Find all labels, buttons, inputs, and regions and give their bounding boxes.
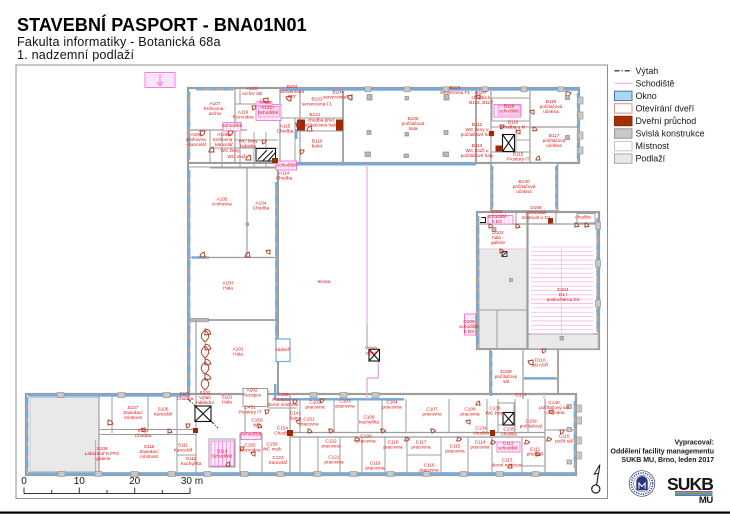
svg-text:Recepce: Recepce xyxy=(243,393,262,398)
svg-text:WC muži: WC muži xyxy=(227,154,246,159)
svg-text:kuchyňka: kuchyňka xyxy=(359,420,379,425)
svg-text:schodiště: schodiště xyxy=(499,109,519,114)
svg-text:Dveřní průchod: Dveřní průchod xyxy=(636,116,697,126)
svg-text:pracovna: pracovna xyxy=(419,468,439,473)
svg-text:serverovna F1: serverovna F1 xyxy=(302,102,332,107)
svg-text:sál ASŘ: sál ASŘ xyxy=(532,361,549,368)
svg-text:k D3: k D3 xyxy=(492,219,502,224)
svg-text:Chodba: Chodba xyxy=(253,206,270,211)
svg-text:Svislá konstrukce: Svislá konstrukce xyxy=(636,129,705,139)
svg-text:sál: sál xyxy=(503,379,509,384)
svg-text:MU: MU xyxy=(699,495,714,506)
svg-text:WC ženy: WC ženy xyxy=(485,411,505,416)
svg-text:Schodiště: Schodiště xyxy=(212,454,233,459)
svg-text:chodba: chodba xyxy=(575,215,591,220)
svg-text:pracovna: pracovna xyxy=(356,439,376,444)
svg-text:20: 20 xyxy=(129,476,141,487)
svg-text:sklad: sklad xyxy=(366,351,377,356)
svg-text:SUKB MU, Brno, leden 2017: SUKB MU, Brno, leden 2017 xyxy=(621,457,714,464)
svg-text:pracovna: pracovna xyxy=(411,445,431,450)
svg-text:30 m: 30 m xyxy=(181,476,203,487)
svg-text:Schodiště: Schodiště xyxy=(276,163,297,168)
svg-text:Hala: Hala xyxy=(233,352,243,357)
svg-text:pracovna: pracovna xyxy=(382,405,402,410)
svg-text:počítačové haly: počítačové haly xyxy=(461,132,494,137)
svg-text:Chodba: Chodba xyxy=(276,176,293,181)
svg-text:92T: 92T xyxy=(288,94,296,99)
svg-text:denní místnost: denní místnost xyxy=(492,463,523,468)
svg-text:Vypracoval:: Vypracoval: xyxy=(675,440,714,447)
svg-text:chodba u N: chodba u N xyxy=(501,125,525,130)
svg-text:Schodiště: Schodiště xyxy=(222,123,243,128)
svg-text:učebna: učebna xyxy=(546,143,562,148)
svg-text:pracovna: pracovna xyxy=(305,405,325,410)
svg-text:- ústředna: - ústředna xyxy=(543,410,564,415)
svg-text:terasa: terasa xyxy=(317,279,330,284)
svg-text:pracovna: pracovna xyxy=(422,412,442,417)
svg-text:pracovna: pracovna xyxy=(365,466,385,471)
svg-text:Fakulta informatiky - Botanick: Fakulta informatiky - Botanická 68a xyxy=(17,35,221,49)
svg-text:WC: WC xyxy=(253,423,261,428)
svg-text:posluchárna D1: posluchárna D1 xyxy=(547,297,580,302)
svg-text:Archiv SB: Archiv SB xyxy=(242,91,263,96)
svg-text:Podlaží: Podlaží xyxy=(636,154,666,164)
svg-text:kabinka: kabinka xyxy=(240,144,257,149)
svg-text:Kancelář: Kancelář xyxy=(174,448,193,453)
svg-text:Schodiště: Schodiště xyxy=(636,78,675,88)
svg-text:galerie: galerie xyxy=(491,240,505,245)
svg-text:Rozvodna: Rozvodna xyxy=(232,115,254,120)
svg-text:Kancelář: Kancelář xyxy=(269,460,288,465)
svg-text:Otevírání dveří: Otevírání dveří xyxy=(636,103,695,113)
svg-text:pracovna: pracovna xyxy=(460,412,480,417)
svg-text:učebna: učebna xyxy=(516,189,532,194)
svg-text:hala: hala xyxy=(409,126,418,131)
svg-text:počít.sál: počít.sál xyxy=(555,439,572,444)
svg-text:Prostory IT: Prostory IT xyxy=(239,410,262,415)
svg-text:k D3: k D3 xyxy=(464,329,474,334)
svg-text:pracovna: pracovna xyxy=(445,449,465,454)
svg-text:- galerie: - galerie xyxy=(94,456,111,461)
svg-text:pracovna: pracovna xyxy=(299,422,319,427)
svg-text:WC ženy: WC ženy xyxy=(220,148,240,153)
svg-text:místnost u D1: místnost u D1 xyxy=(522,215,551,220)
svg-text:Schodiště: Schodiště xyxy=(258,110,279,115)
svg-text:Prostory IT: Prostory IT xyxy=(507,157,530,162)
svg-text:denní místnost: denní místnost xyxy=(268,402,299,407)
svg-text:serverovna F1: serverovna F1 xyxy=(323,95,353,100)
svg-text:STAVEBNÍ PASPORT - BNA01N01: STAVEBNÍ PASPORT - BNA01N01 xyxy=(17,14,307,35)
svg-text:bufet: bufet xyxy=(312,144,323,149)
svg-text:počítačové haly: počítačové haly xyxy=(461,153,494,158)
svg-text:Výtah: Výtah xyxy=(636,66,659,76)
svg-text:10: 10 xyxy=(74,476,86,487)
svg-text:pracovna: pracovna xyxy=(335,404,355,409)
svg-text:Hala: Hala xyxy=(222,400,232,405)
svg-text:kancelář: kancelář xyxy=(215,142,233,147)
svg-text:Chodba: Chodba xyxy=(277,129,294,134)
svg-text:počítačový: počítačový xyxy=(520,424,543,429)
svg-text:předsálí: předsálí xyxy=(527,452,544,457)
svg-text:0: 0 xyxy=(21,476,27,487)
svg-text:archiv: archiv xyxy=(209,111,222,116)
svg-text:1. nadzemní podlaží: 1. nadzemní podlaží xyxy=(17,48,135,62)
svg-text:B116, B117: B116, B117 xyxy=(469,100,493,105)
svg-text:schodiště: schodiště xyxy=(498,446,518,451)
svg-text:serverovna F1: serverovna F1 xyxy=(440,90,470,95)
svg-text:místnost: místnost xyxy=(124,415,142,420)
svg-text:počítačovou halou: počítačovou halou xyxy=(302,123,340,128)
svg-text:Oddělení facility managementu: Oddělení facility managementu xyxy=(611,448,714,455)
svg-text:zádveří: zádveří xyxy=(275,347,291,352)
svg-text:B121: B121 xyxy=(310,112,321,117)
svg-text:Chodba: Chodba xyxy=(135,433,152,438)
svg-text:Okno: Okno xyxy=(636,91,657,101)
svg-text:WC muži: WC muži xyxy=(262,447,281,452)
svg-text:C137: C137 xyxy=(515,393,527,398)
svg-text:nákladní: nákladní xyxy=(196,400,214,405)
svg-text:Chodba: Chodba xyxy=(274,431,291,436)
svg-text:- kancelář: - kancelář xyxy=(186,142,207,147)
svg-text:Šatna: Šatna xyxy=(259,99,272,105)
svg-text:pracovna: pracovna xyxy=(470,445,490,450)
svg-text:šatna: šatna xyxy=(290,416,302,421)
svg-text:chodba: chodba xyxy=(473,431,489,436)
svg-text:Rozvodna: Rozvodna xyxy=(239,448,261,453)
svg-text:Schodiště: Schodiště xyxy=(241,432,262,437)
svg-text:pracovna: pracovna xyxy=(321,444,341,449)
svg-text:pracovna: pracovna xyxy=(383,445,403,450)
svg-text:učebna: učebna xyxy=(543,109,559,114)
svg-text:chodba: chodba xyxy=(501,432,517,437)
svg-text:pracovna: pracovna xyxy=(324,460,344,465)
svg-text:Chodba: Chodba xyxy=(177,396,194,401)
svg-text:Kuchyňka: Kuchyňka xyxy=(181,461,202,466)
svg-text:místnost: místnost xyxy=(140,454,158,459)
svg-text:Místnost: Místnost xyxy=(636,141,670,151)
svg-text:Hala: Hala xyxy=(223,286,233,291)
svg-text:Knihovna: Knihovna xyxy=(212,202,232,207)
svg-text:Kancelář: Kancelář xyxy=(154,412,173,417)
